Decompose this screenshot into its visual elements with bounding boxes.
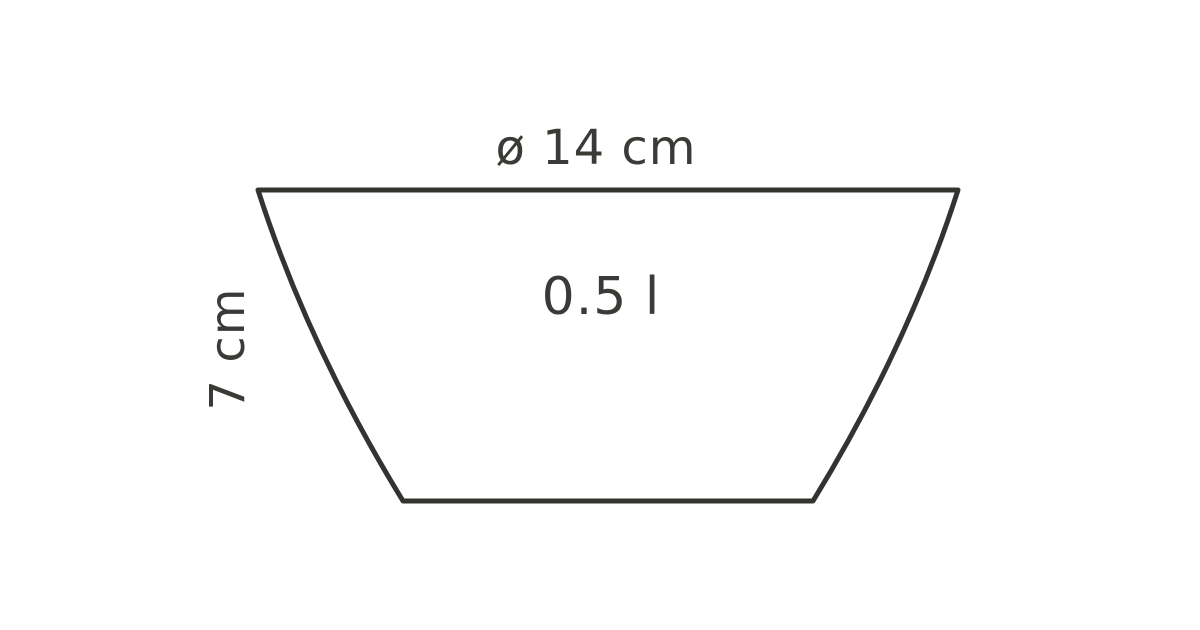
diameter-label: ø 14 cm: [495, 124, 696, 172]
diagram-canvas: ø 14 cm 7 cm 0.5 l: [0, 0, 1200, 630]
volume-label: 0.5 l: [542, 271, 661, 323]
bowl-outline: [258, 190, 958, 501]
height-label: 7 cm: [204, 288, 252, 411]
